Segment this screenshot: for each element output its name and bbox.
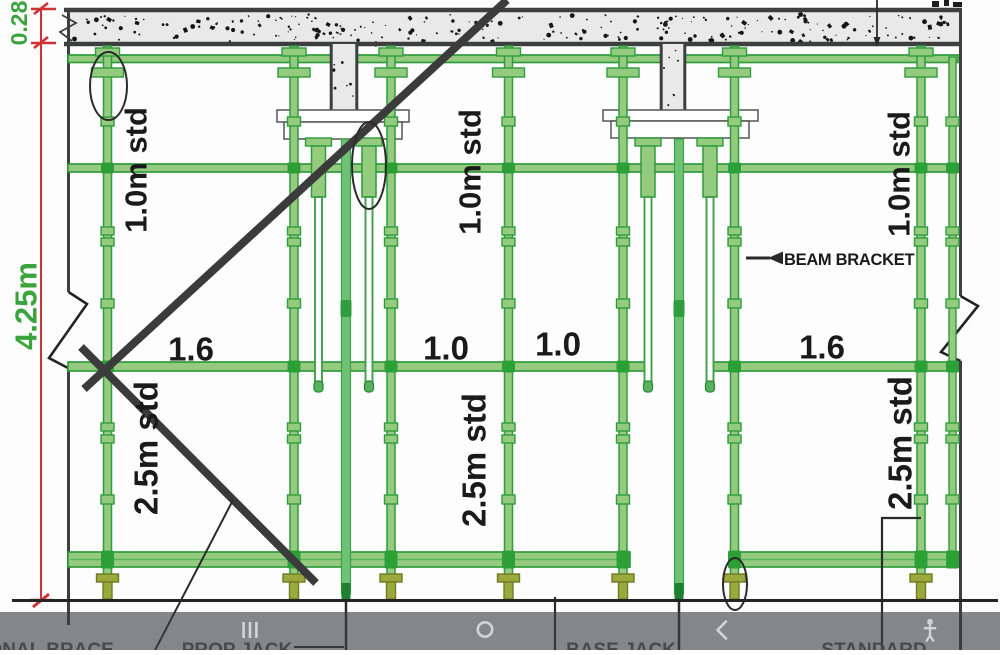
- svg-text:1.6: 1.6: [799, 329, 845, 366]
- svg-text:1.0m std: 1.0m std: [453, 109, 488, 235]
- svg-text:1.0: 1.0: [423, 330, 469, 367]
- svg-text:0.28: 0.28: [6, 0, 32, 45]
- svg-text:2.5m std: 2.5m std: [882, 376, 919, 510]
- svg-text:2.5m std: 2.5m std: [456, 393, 493, 527]
- svg-text:1.0m std: 1.0m std: [119, 107, 154, 233]
- svg-text:BEAM BRACKET: BEAM BRACKET: [784, 251, 914, 269]
- svg-text:1.0m std: 1.0m std: [882, 111, 917, 237]
- svg-text:1.6: 1.6: [168, 331, 214, 368]
- svg-text:4.25m: 4.25m: [9, 262, 44, 350]
- svg-text:1.0: 1.0: [535, 326, 581, 363]
- svg-text:2.5m std: 2.5m std: [128, 381, 165, 515]
